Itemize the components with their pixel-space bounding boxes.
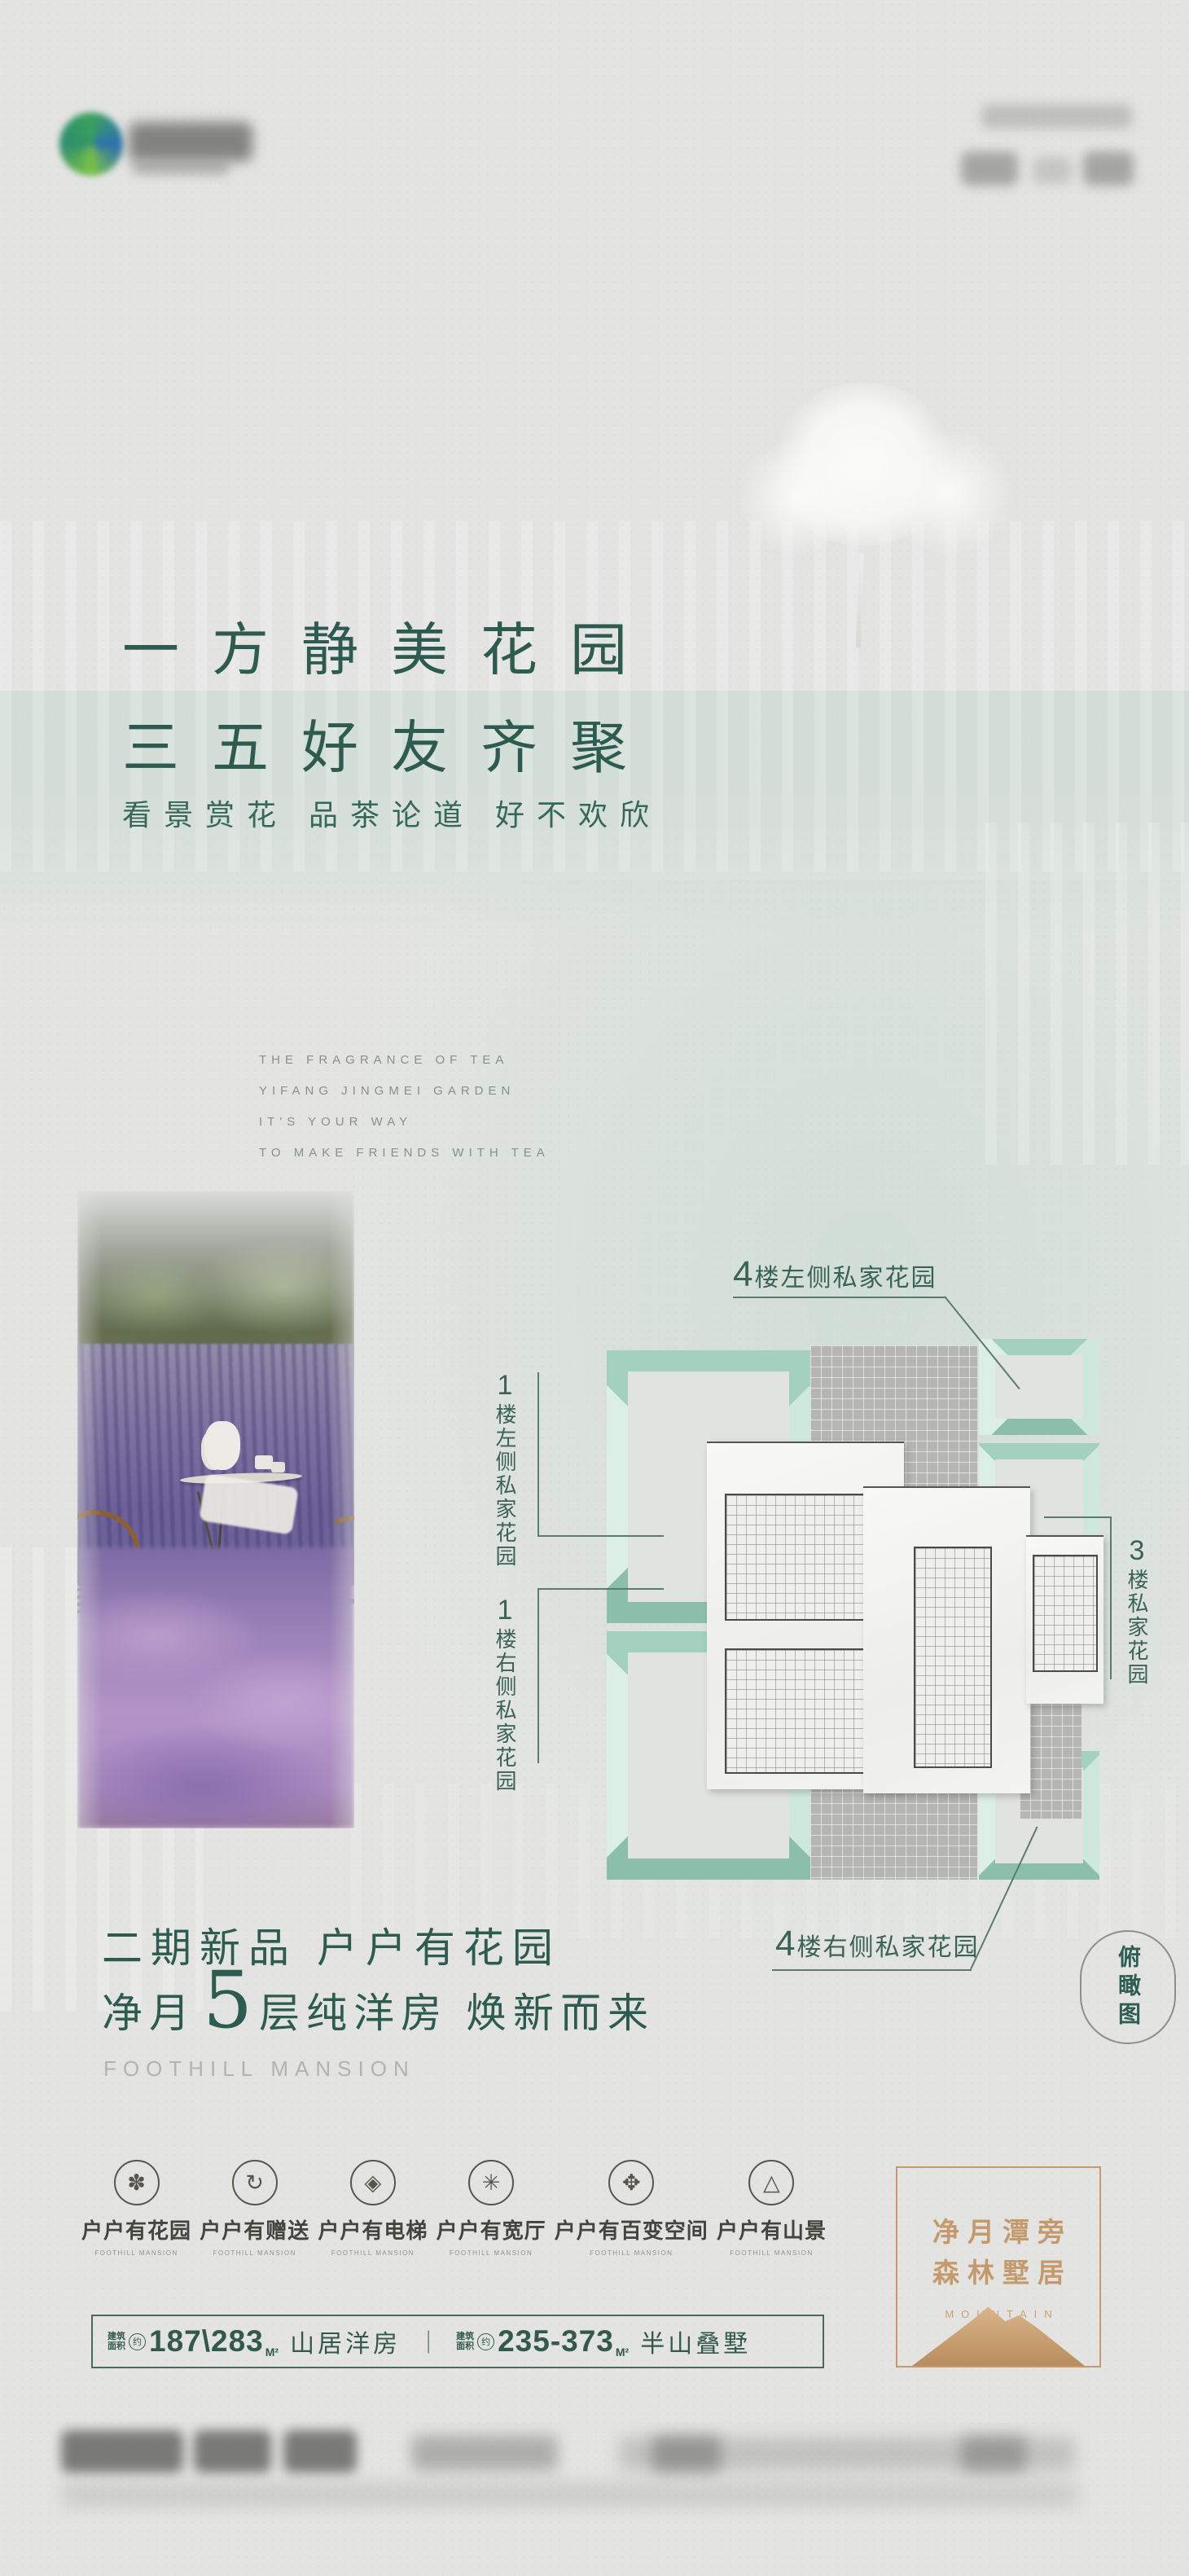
approx-circle: 约 — [129, 2333, 146, 2350]
blurred-phone-segment — [194, 2430, 271, 2473]
feature-item: ✥ 户户有百变空间 FOOTHILL MANSION — [555, 2160, 709, 2257]
promo-line2-prefix: 净月 — [102, 1981, 196, 2039]
english-line: IT'S YOUR WAY — [259, 1107, 550, 1138]
promo-line2-suffix: 层纯洋房 焕新而来 — [259, 1981, 655, 2039]
courtyard-grid — [725, 1648, 868, 1774]
feature-item: ↻ 户户有赠送 FOOTHILL MANSION — [200, 2160, 309, 2257]
english-line: TO MAKE FRIENDS WITH TEA — [259, 1138, 550, 1169]
clover-icon: ✥ — [608, 2160, 654, 2205]
garden-frame — [979, 1339, 1099, 1435]
blurred-topright-line2c — [1083, 151, 1134, 186]
birdseye-floorplan — [603, 1327, 1103, 1898]
english-intro: THE FRAGRANCE OF TEA YIFANG JINGMEI GARD… — [259, 1045, 550, 1169]
flower-icon: ✽ — [114, 2160, 160, 2205]
spec-name-1: 山居洋房 — [290, 2324, 401, 2359]
blurred-phone-segment — [61, 2430, 183, 2473]
plan-label-bottom: 4楼右侧私家花园 — [775, 1924, 979, 1964]
cycle-icon: ↻ — [232, 2160, 278, 2205]
leader-line — [733, 1297, 946, 1298]
leader-line — [537, 1588, 664, 1590]
promo-line2: 净月 5 层纯洋房 焕新而来 — [102, 1961, 655, 2039]
snowflake-icon: ✳ — [468, 2160, 514, 2205]
lavender-garden-photo — [77, 1191, 354, 1828]
leader-line — [772, 1969, 972, 1971]
feature-caption: FOOTHILL MANSION — [555, 2249, 709, 2257]
developer-logo — [59, 112, 123, 176]
plan-label-left2: 1楼右侧私家花园 — [489, 1595, 520, 1770]
feature-label: 户户有电梯 — [318, 2214, 428, 2245]
plan-label-left1: 1楼左侧私家花园 — [489, 1370, 520, 1545]
headline-line1: 一方静美花园 — [122, 604, 660, 687]
plan-label-top: 4楼左侧私家花园 — [733, 1254, 937, 1295]
leader-line — [1044, 1516, 1112, 1518]
spec-name-2: 半山叠墅 — [640, 2324, 751, 2359]
feature-caption: FOOTHILL MANSION — [717, 2249, 827, 2257]
lattice-icon: ◈ — [350, 2160, 396, 2205]
feature-label: 户户有花园 — [81, 2214, 191, 2245]
gold-slogan-box: 净月潭旁 森林墅居 MOUNTAIN — [896, 2166, 1101, 2368]
marble-plate — [863, 1486, 1030, 1793]
blurred-contact-text — [652, 2435, 721, 2473]
spec-value-2: 235-373 — [498, 2324, 614, 2359]
spec-value-1: 187\283 — [149, 2324, 264, 2359]
blurred-topright-line2a — [961, 151, 1018, 186]
headline-line2: 三五好友齐聚 — [122, 702, 660, 784]
photo-fade-overlay — [77, 1191, 354, 1828]
blurred-contact-text — [961, 2435, 1026, 2473]
feature-item: ✳ 户户有宽厅 FOOTHILL MANSION — [437, 2160, 546, 2257]
leader-line — [537, 1588, 539, 1763]
english-line: THE FRAGRANCE OF TEA — [259, 1045, 550, 1076]
approx-circle: 约 — [477, 2333, 494, 2350]
feature-label: 户户有百变空间 — [555, 2214, 709, 2245]
english-line: YIFANG JINGMEI GARDEN — [259, 1076, 550, 1107]
gold-line2: 森林墅居 — [897, 2251, 1099, 2290]
subtitle: 看景赏花 品茶论道 好不欢欣 — [122, 792, 661, 834]
features-row: ✽ 户户有花园 FOOTHILL MANSION ↻ 户户有赠送 FOOTHIL… — [81, 2160, 827, 2257]
blurred-disclaimer-line — [61, 2482, 1079, 2507]
feature-label: 户户有宽厅 — [437, 2214, 546, 2245]
feature-caption: FOOTHILL MANSION — [200, 2249, 309, 2257]
spec-prefix: 建筑面积 — [456, 2332, 474, 2351]
feature-item: ✽ 户户有花园 FOOTHILL MANSION — [81, 2160, 191, 2257]
spec-unit: M² — [265, 2346, 279, 2359]
leader-line — [1110, 1516, 1112, 1679]
spec-prefix: 建筑面积 — [107, 2332, 125, 2351]
ghost-tree-canopy — [733, 440, 863, 554]
blurred-topright-line2b — [1033, 156, 1072, 184]
feature-label: 户户有山景 — [717, 2214, 827, 2245]
real-estate-poster: 一方静美花园 三五好友齐聚 看景赏花 品茶论道 好不欢欣 THE FRAGRAN… — [0, 0, 1189, 2576]
feature-item: ◈ 户户有电梯 FOOTHILL MANSION — [318, 2160, 428, 2257]
blurred-phone-segment — [283, 2430, 357, 2473]
feature-caption: FOOTHILL MANSION — [318, 2249, 428, 2257]
promo-line2-number: 5 — [203, 1961, 252, 2039]
blurred-logo-subtext — [132, 161, 230, 174]
leader-line — [537, 1535, 664, 1537]
fence-stripes — [985, 823, 1189, 1165]
leader-line — [537, 1372, 539, 1537]
birdseye-badge: 俯瞰图 — [1080, 1930, 1176, 2044]
marble-plate — [1026, 1535, 1103, 1704]
feature-label: 户户有赠送 — [200, 2214, 309, 2245]
spec-unit: M² — [616, 2346, 629, 2359]
courtyard-grid — [725, 1494, 873, 1621]
mountain-tree-icon: △ — [748, 2160, 794, 2205]
courtyard-grid — [914, 1547, 992, 1768]
feature-caption: FOOTHILL MANSION — [81, 2249, 191, 2257]
feature-item: △ 户户有山景 FOOTHILL MANSION — [717, 2160, 827, 2257]
spec-divider: ｜ — [417, 2325, 440, 2358]
blurred-logo-text — [129, 122, 252, 161]
feature-caption: FOOTHILL MANSION — [437, 2249, 546, 2257]
brand-english: FOOTHILL MANSION — [103, 2056, 415, 2082]
blurred-topright-line1 — [981, 104, 1132, 129]
area-spec-bar: 建筑面积 约 187\283 M² 山居洋房 ｜ 建筑面积 约 235-373 … — [91, 2315, 824, 2368]
blurred-contact-text — [411, 2435, 558, 2471]
gold-line1: 净月潭旁 — [897, 2210, 1099, 2249]
plan-label-right: 3楼私家花园 — [1121, 1535, 1152, 1682]
courtyard-grid — [1033, 1555, 1098, 1672]
ghost-tree-canopy — [880, 432, 1018, 554]
